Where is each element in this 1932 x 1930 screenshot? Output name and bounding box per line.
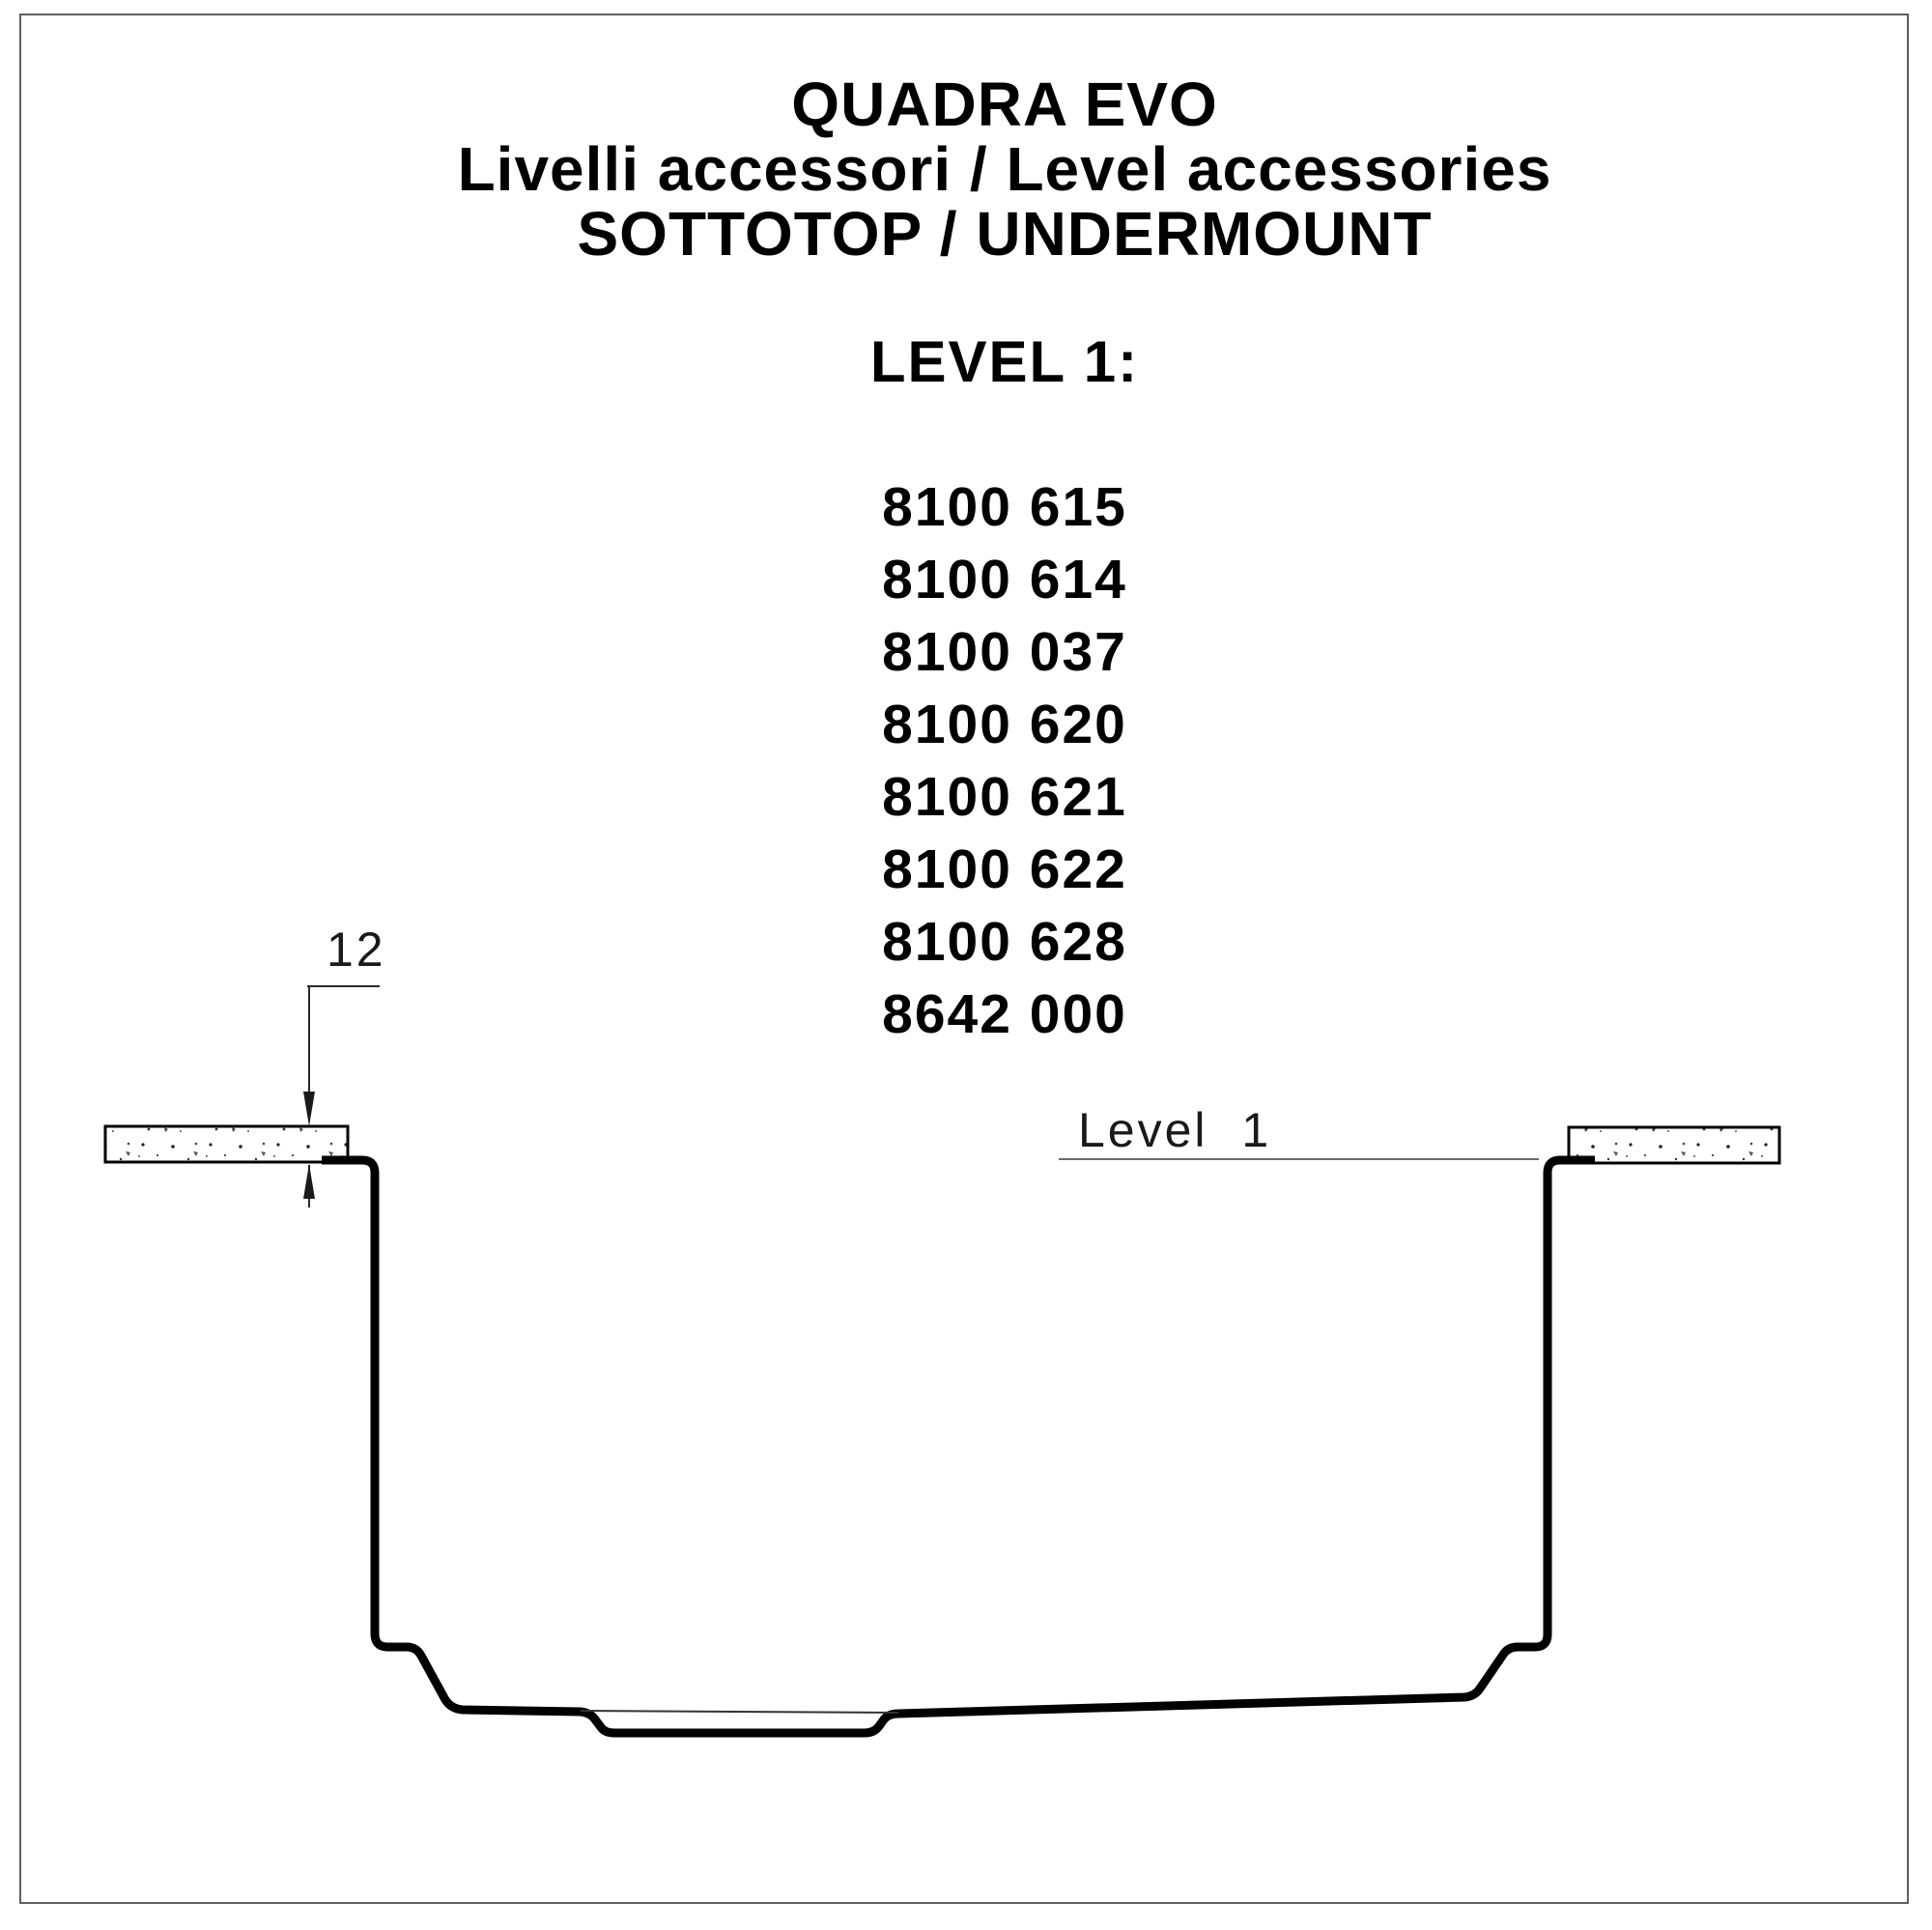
page: { "header": { "title": "QUADRA EVO", "su… — [0, 0, 1932, 1930]
dimension-value-label: 12 — [327, 922, 386, 978]
level-line-label: Level 1 — [1078, 1102, 1271, 1158]
sink-outline — [322, 1160, 1595, 1733]
dimension-12 — [307, 986, 380, 1207]
technical-drawing — [0, 0, 1932, 1930]
countertop-right-section — [1569, 1127, 1779, 1163]
drain-recess-top-line — [581, 1711, 898, 1713]
countertop-left-section — [105, 1126, 348, 1162]
arrow-down-icon — [303, 1092, 315, 1126]
arrow-up-icon — [303, 1164, 315, 1199]
